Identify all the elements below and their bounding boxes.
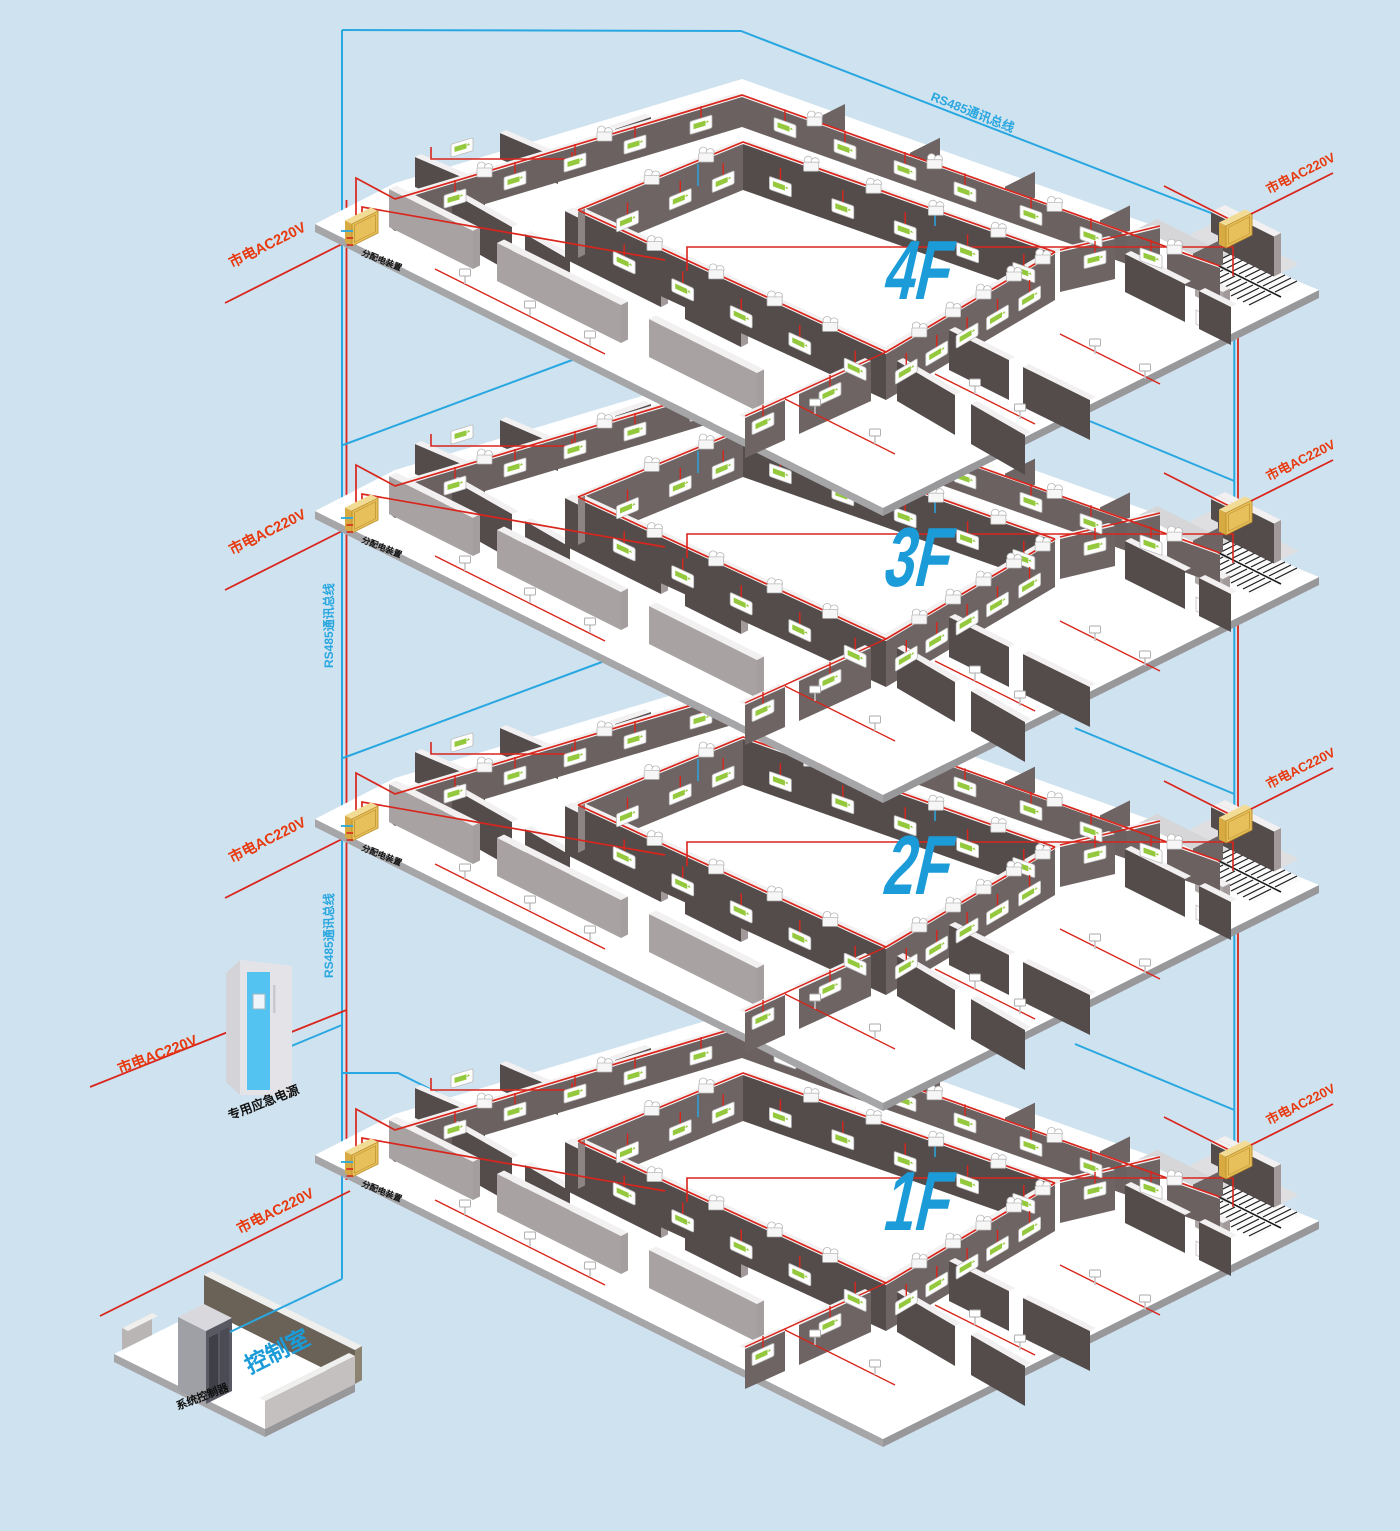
svg-text:RS485通讯总线: RS485通讯总线 — [321, 893, 336, 978]
svg-text:RS485通讯总线: RS485通讯总线 — [321, 583, 336, 668]
